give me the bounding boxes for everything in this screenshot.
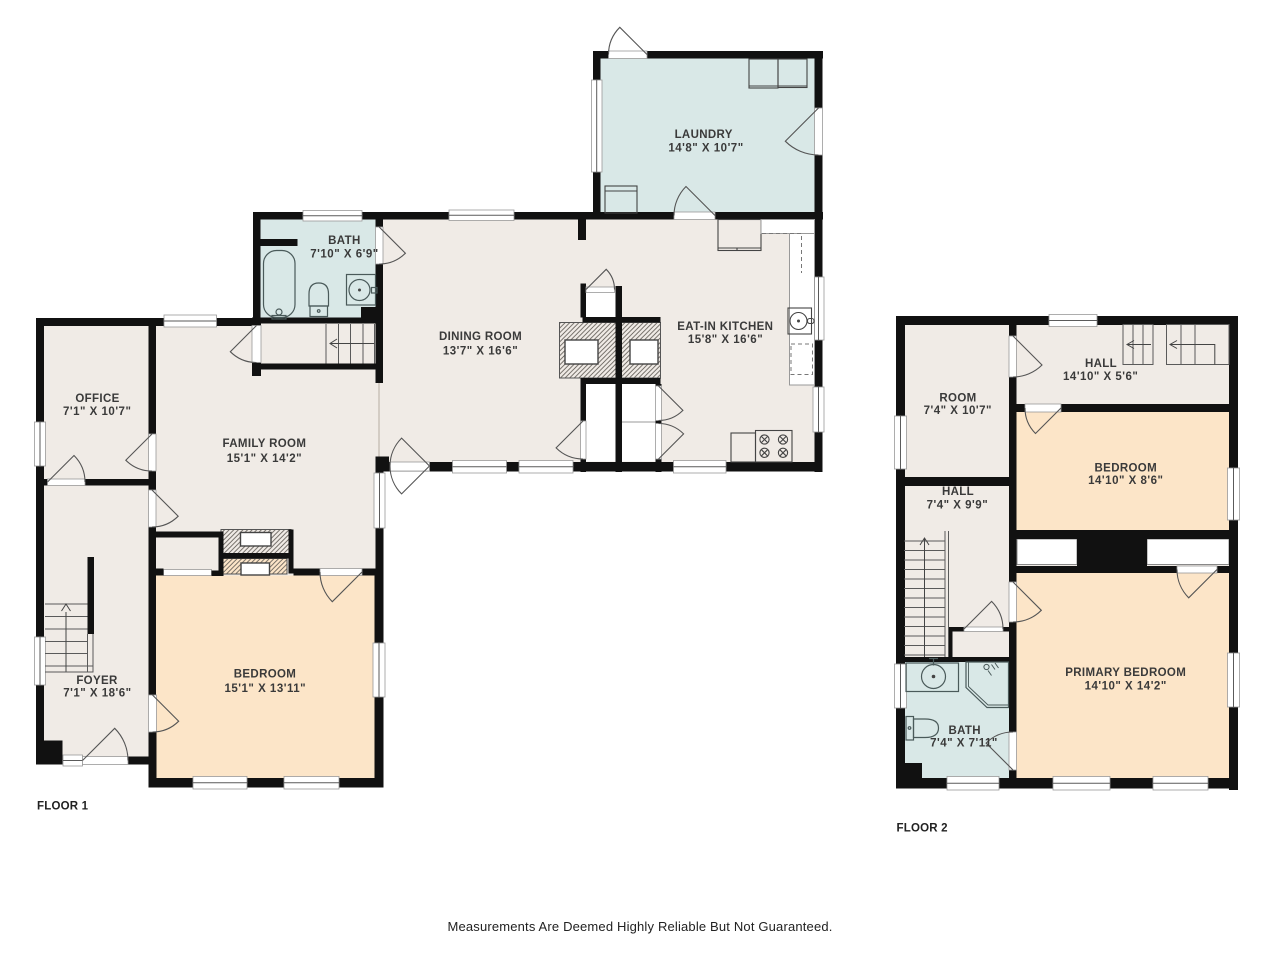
svg-text:13'7" X 16'6": 13'7" X 16'6": [443, 345, 518, 357]
svg-text:7'4" X 10'7": 7'4" X 10'7": [924, 405, 992, 417]
svg-text:EAT-IN KITCHEN: EAT-IN KITCHEN: [677, 321, 773, 333]
svg-text:15'1" X 14'2": 15'1" X 14'2": [227, 453, 302, 465]
svg-text:FOYER: FOYER: [76, 675, 118, 687]
svg-text:14'10" X 8'6": 14'10" X 8'6": [1088, 475, 1163, 487]
svg-text:BATH: BATH: [948, 725, 981, 737]
svg-text:FAMILY ROOM: FAMILY ROOM: [223, 438, 307, 450]
svg-text:7'1" X 18'6": 7'1" X 18'6": [63, 688, 131, 700]
svg-text:FLOOR 2: FLOOR 2: [897, 822, 948, 834]
svg-text:LAUNDRY: LAUNDRY: [675, 129, 733, 141]
svg-text:HALL: HALL: [1085, 358, 1117, 370]
svg-text:ROOM: ROOM: [939, 392, 976, 404]
svg-text:14'10" X 14'2": 14'10" X 14'2": [1085, 681, 1167, 693]
svg-text:7'4" X 9'9": 7'4" X 9'9": [927, 500, 989, 512]
svg-text:HALL: HALL: [942, 486, 974, 498]
svg-text:7'4" X 7'11": 7'4" X 7'11": [930, 738, 998, 750]
svg-text:7'10" X 6'9": 7'10" X 6'9": [310, 248, 378, 260]
svg-text:DINING ROOM: DINING ROOM: [439, 331, 522, 343]
svg-text:7'1" X 10'7": 7'1" X 10'7": [63, 406, 131, 418]
svg-text:15'8" X 16'6": 15'8" X 16'6": [688, 334, 763, 346]
svg-text:BEDROOM: BEDROOM: [1095, 462, 1158, 474]
svg-text:14'10" X 5'6": 14'10" X 5'6": [1063, 371, 1138, 383]
svg-text:PRIMARY BEDROOM: PRIMARY BEDROOM: [1065, 667, 1186, 679]
svg-text:OFFICE: OFFICE: [75, 393, 119, 405]
svg-text:15'1" X 13'11": 15'1" X 13'11": [225, 683, 307, 695]
svg-text:BATH: BATH: [328, 235, 361, 247]
svg-text:Measurements Are Deemed Highly: Measurements Are Deemed Highly Reliable …: [447, 919, 832, 934]
svg-text:FLOOR 1: FLOOR 1: [37, 801, 89, 813]
svg-text:BEDROOM: BEDROOM: [234, 669, 297, 681]
svg-text:14'8" X 10'7": 14'8" X 10'7": [668, 142, 743, 154]
